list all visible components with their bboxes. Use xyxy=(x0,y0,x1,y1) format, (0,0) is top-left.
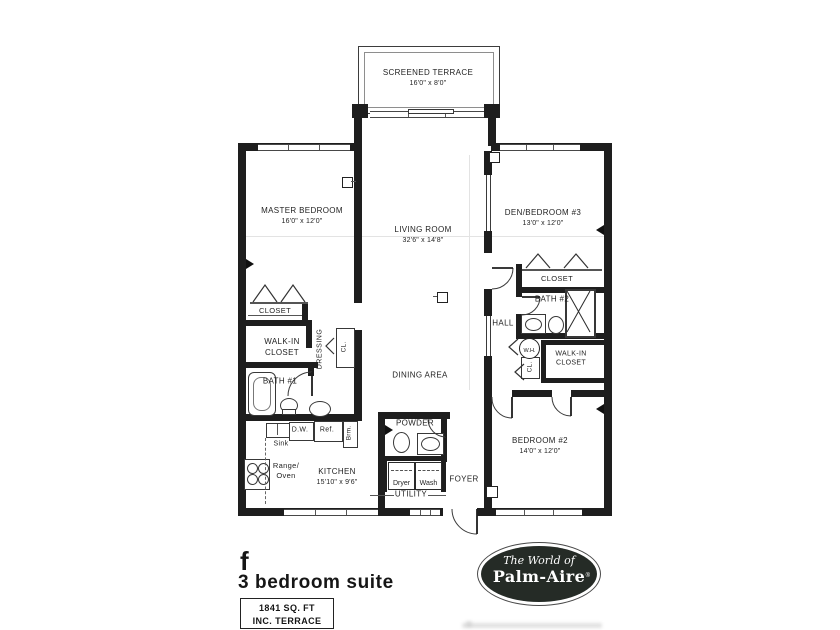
label-cl-master: CL. xyxy=(341,342,348,353)
plan-annotations-svg xyxy=(0,0,840,630)
label-bedroom2: BEDROOM #2 14'0" x 12'0" xyxy=(512,436,568,456)
den-bedroom3-dims: 13'0" x 12'0" xyxy=(505,219,581,228)
label-bath1: BATH #1 xyxy=(263,377,297,388)
label-bath2: BATH #2 xyxy=(535,295,569,306)
label-sink: Sink xyxy=(273,439,288,448)
plan-title: 3 bedroom suite xyxy=(238,572,394,594)
logo-registered-mark: ® xyxy=(586,573,590,579)
walkin-bed2-line2: CLOSET xyxy=(555,359,586,368)
range-line2: Oven xyxy=(273,471,299,481)
label-dressing: DRESSING xyxy=(317,329,324,370)
bifold-den-closet-2 xyxy=(564,254,588,268)
den-bedroom3-name: DEN/BEDROOM #3 xyxy=(505,208,581,219)
label-hall: HALL xyxy=(492,319,513,330)
label-range-oven: Range/ Oven xyxy=(273,461,299,481)
label-walkin-bed2: WALK-IN CLOSET xyxy=(555,350,586,369)
terrace-dims: 16'0" x 8'0" xyxy=(383,79,473,88)
terrace-name: SCREENED TERRACE xyxy=(383,68,473,79)
walkin-master-line1: WALK-IN xyxy=(264,337,300,348)
den-door-arc xyxy=(492,268,513,289)
master-bedroom-dims: 16'0" x 12'0" xyxy=(261,217,343,226)
label-closet-den: CLOSET xyxy=(541,274,573,284)
label-den-bedroom3: DEN/BEDROOM #3 13'0" x 12'0" xyxy=(505,208,581,228)
label-living-room: LIVING ROOM 32'6" x 14'8" xyxy=(394,225,451,245)
range-line1: Range/ xyxy=(273,461,299,471)
kitchen-dims: 15'10" x 9'6" xyxy=(317,478,358,487)
master-bedroom-name: MASTER BEDROOM xyxy=(261,206,343,217)
label-closet-master: CLOSET xyxy=(259,306,291,316)
logo-tagline: The World of xyxy=(481,554,597,567)
bifold-cl-master xyxy=(326,338,334,354)
logo-brand: Palm-Aire xyxy=(481,567,597,586)
bedroom2-door2-arc xyxy=(552,397,571,416)
walkin-master-line2: CLOSET xyxy=(264,348,300,359)
palm-aire-logo: The World of Palm-Aire ® xyxy=(477,542,601,606)
living-room-name: LIVING ROOM xyxy=(394,225,451,236)
area-box: 1841 SQ. FT INC. TERRACE xyxy=(240,598,334,629)
area-note: INC. TERRACE xyxy=(241,615,333,628)
entry-door-arc xyxy=(452,509,477,534)
bifold-master-closet-2 xyxy=(281,285,305,302)
label-dishwasher: D.W. xyxy=(292,425,309,434)
label-kitchen: KITCHEN 15'10" x 9'6" xyxy=(317,467,358,487)
bedroom2-door1-arc xyxy=(492,397,512,418)
bifold-cl-hall xyxy=(515,364,524,380)
label-utility: UTILITY xyxy=(395,490,427,501)
label-broom: Brm. xyxy=(346,426,353,441)
bedroom2-name: BEDROOM #2 xyxy=(512,436,568,447)
bifold-den-closet-1 xyxy=(526,254,550,268)
bottom-edge-smudge-dot xyxy=(466,621,472,627)
bifold-wh-nook xyxy=(509,339,518,355)
floorplan-page: { "title_block": { "plan_letter": "f", "… xyxy=(0,0,840,630)
palm-aire-logo-oval: The World of Palm-Aire ® xyxy=(481,546,597,602)
bedroom2-dims: 14'0" x 12'0" xyxy=(512,447,568,456)
label-dining-area: DINING AREA xyxy=(392,371,447,382)
bifold-master-closet-1 xyxy=(253,285,277,302)
bottom-edge-smudge xyxy=(462,623,602,628)
living-room-dims: 32'6" x 14'8" xyxy=(394,236,451,245)
label-cl-hall: CL. xyxy=(527,362,534,373)
area-sqft: 1841 SQ. FT xyxy=(241,602,333,615)
label-walkin-master: WALK-IN CLOSET xyxy=(264,337,300,359)
walkin-bed2-line1: WALK-IN xyxy=(555,350,586,359)
label-terrace: SCREENED TERRACE 16'0" x 8'0" xyxy=(383,68,473,88)
kitchen-name: KITCHEN xyxy=(317,467,358,478)
label-foyer: FOYER xyxy=(449,475,478,486)
label-powder: POWDER xyxy=(396,419,434,430)
label-refrigerator: Ref. xyxy=(320,425,334,434)
label-master-bedroom: MASTER BEDROOM 16'0" x 12'0" xyxy=(261,206,343,226)
